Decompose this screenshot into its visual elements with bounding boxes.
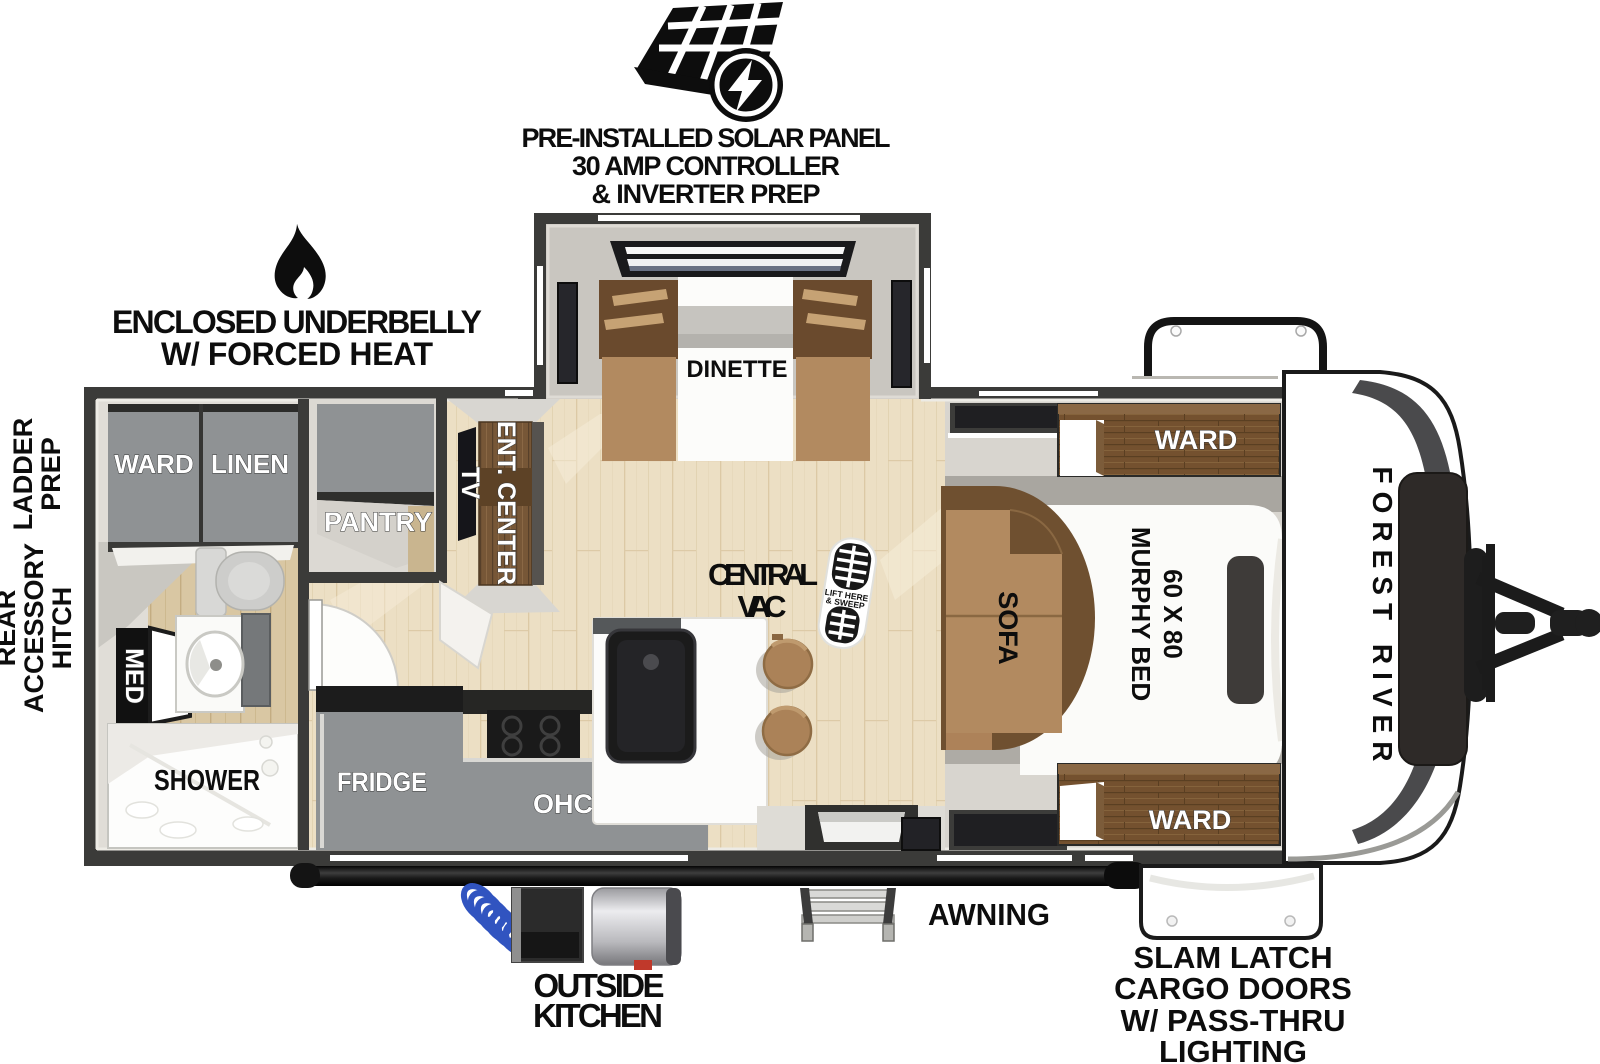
svg-text:& INVERTER PREP: & INVERTER PREP — [592, 179, 821, 209]
svg-text:W/ PASS-THRU: W/ PASS-THRU — [1120, 1003, 1345, 1038]
svg-text:ENT. CENTER: ENT. CENTER — [492, 421, 520, 585]
svg-text:TV: TV — [456, 467, 484, 499]
svg-text:CENTRAL: CENTRAL — [708, 557, 818, 592]
svg-text:SLAM LATCH: SLAM LATCH — [1133, 940, 1332, 975]
svg-text:WARD: WARD — [1149, 805, 1232, 835]
svg-text:FRIDGE: FRIDGE — [337, 767, 427, 797]
svg-text:DINETTE: DINETTE — [687, 356, 788, 383]
svg-text:REARACCESSORYHITCH: REARACCESSORYHITCH — [0, 543, 77, 713]
svg-text:PRE-INSTALLED SOLAR PANEL: PRE-INSTALLED SOLAR PANEL — [522, 123, 891, 153]
svg-text:30 AMP CONTROLLER: 30 AMP CONTROLLER — [572, 151, 840, 181]
svg-text:AWNING: AWNING — [928, 897, 1050, 932]
svg-text:SOFA: SOFA — [993, 591, 1023, 665]
svg-text:KITCHEN: KITCHEN — [533, 997, 663, 1034]
svg-text:PANTRY: PANTRY — [324, 507, 432, 537]
svg-text:ENCLOSED UNDERBELLY: ENCLOSED UNDERBELLY — [112, 304, 482, 340]
svg-text:WARD: WARD — [1155, 425, 1238, 455]
svg-text:60 X 80: 60 X 80 — [1158, 569, 1188, 659]
svg-text:WARD: WARD — [114, 449, 193, 479]
svg-text:MED: MED — [120, 648, 148, 704]
svg-text:CARGO DOORS: CARGO DOORS — [1114, 971, 1352, 1006]
svg-text:MURPHY BED: MURPHY BED — [1126, 527, 1156, 701]
svg-text:LIGHTING: LIGHTING — [1159, 1034, 1307, 1064]
svg-text:W/ FORCED HEAT: W/ FORCED HEAT — [161, 336, 433, 372]
svg-text:SHOWER: SHOWER — [154, 765, 260, 797]
svg-text:OHC: OHC — [533, 789, 593, 819]
svg-text:LADDERPREP: LADDERPREP — [8, 418, 66, 531]
svg-text:LINEN: LINEN — [211, 449, 289, 479]
svg-text:VAC: VAC — [738, 589, 787, 624]
svg-text:FOREST RIVER: FOREST RIVER — [1367, 467, 1398, 770]
